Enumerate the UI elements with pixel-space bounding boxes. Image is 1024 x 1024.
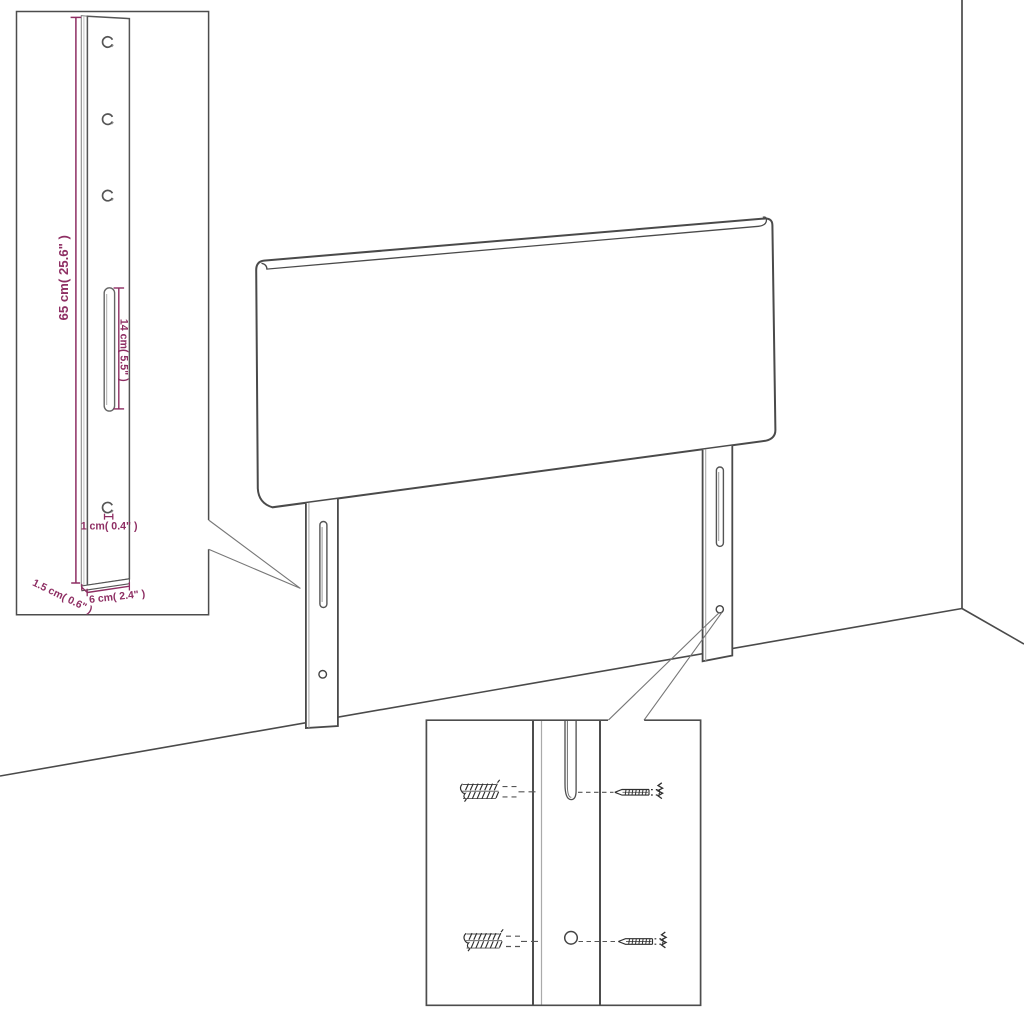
svg-text:1 cm( 0.4" ): 1 cm( 0.4" ) [81, 520, 138, 532]
svg-text:65 cm( 25.6" ): 65 cm( 25.6" ) [56, 235, 71, 320]
svg-text:14 cm( 5.5" ): 14 cm( 5.5" ) [117, 319, 129, 382]
